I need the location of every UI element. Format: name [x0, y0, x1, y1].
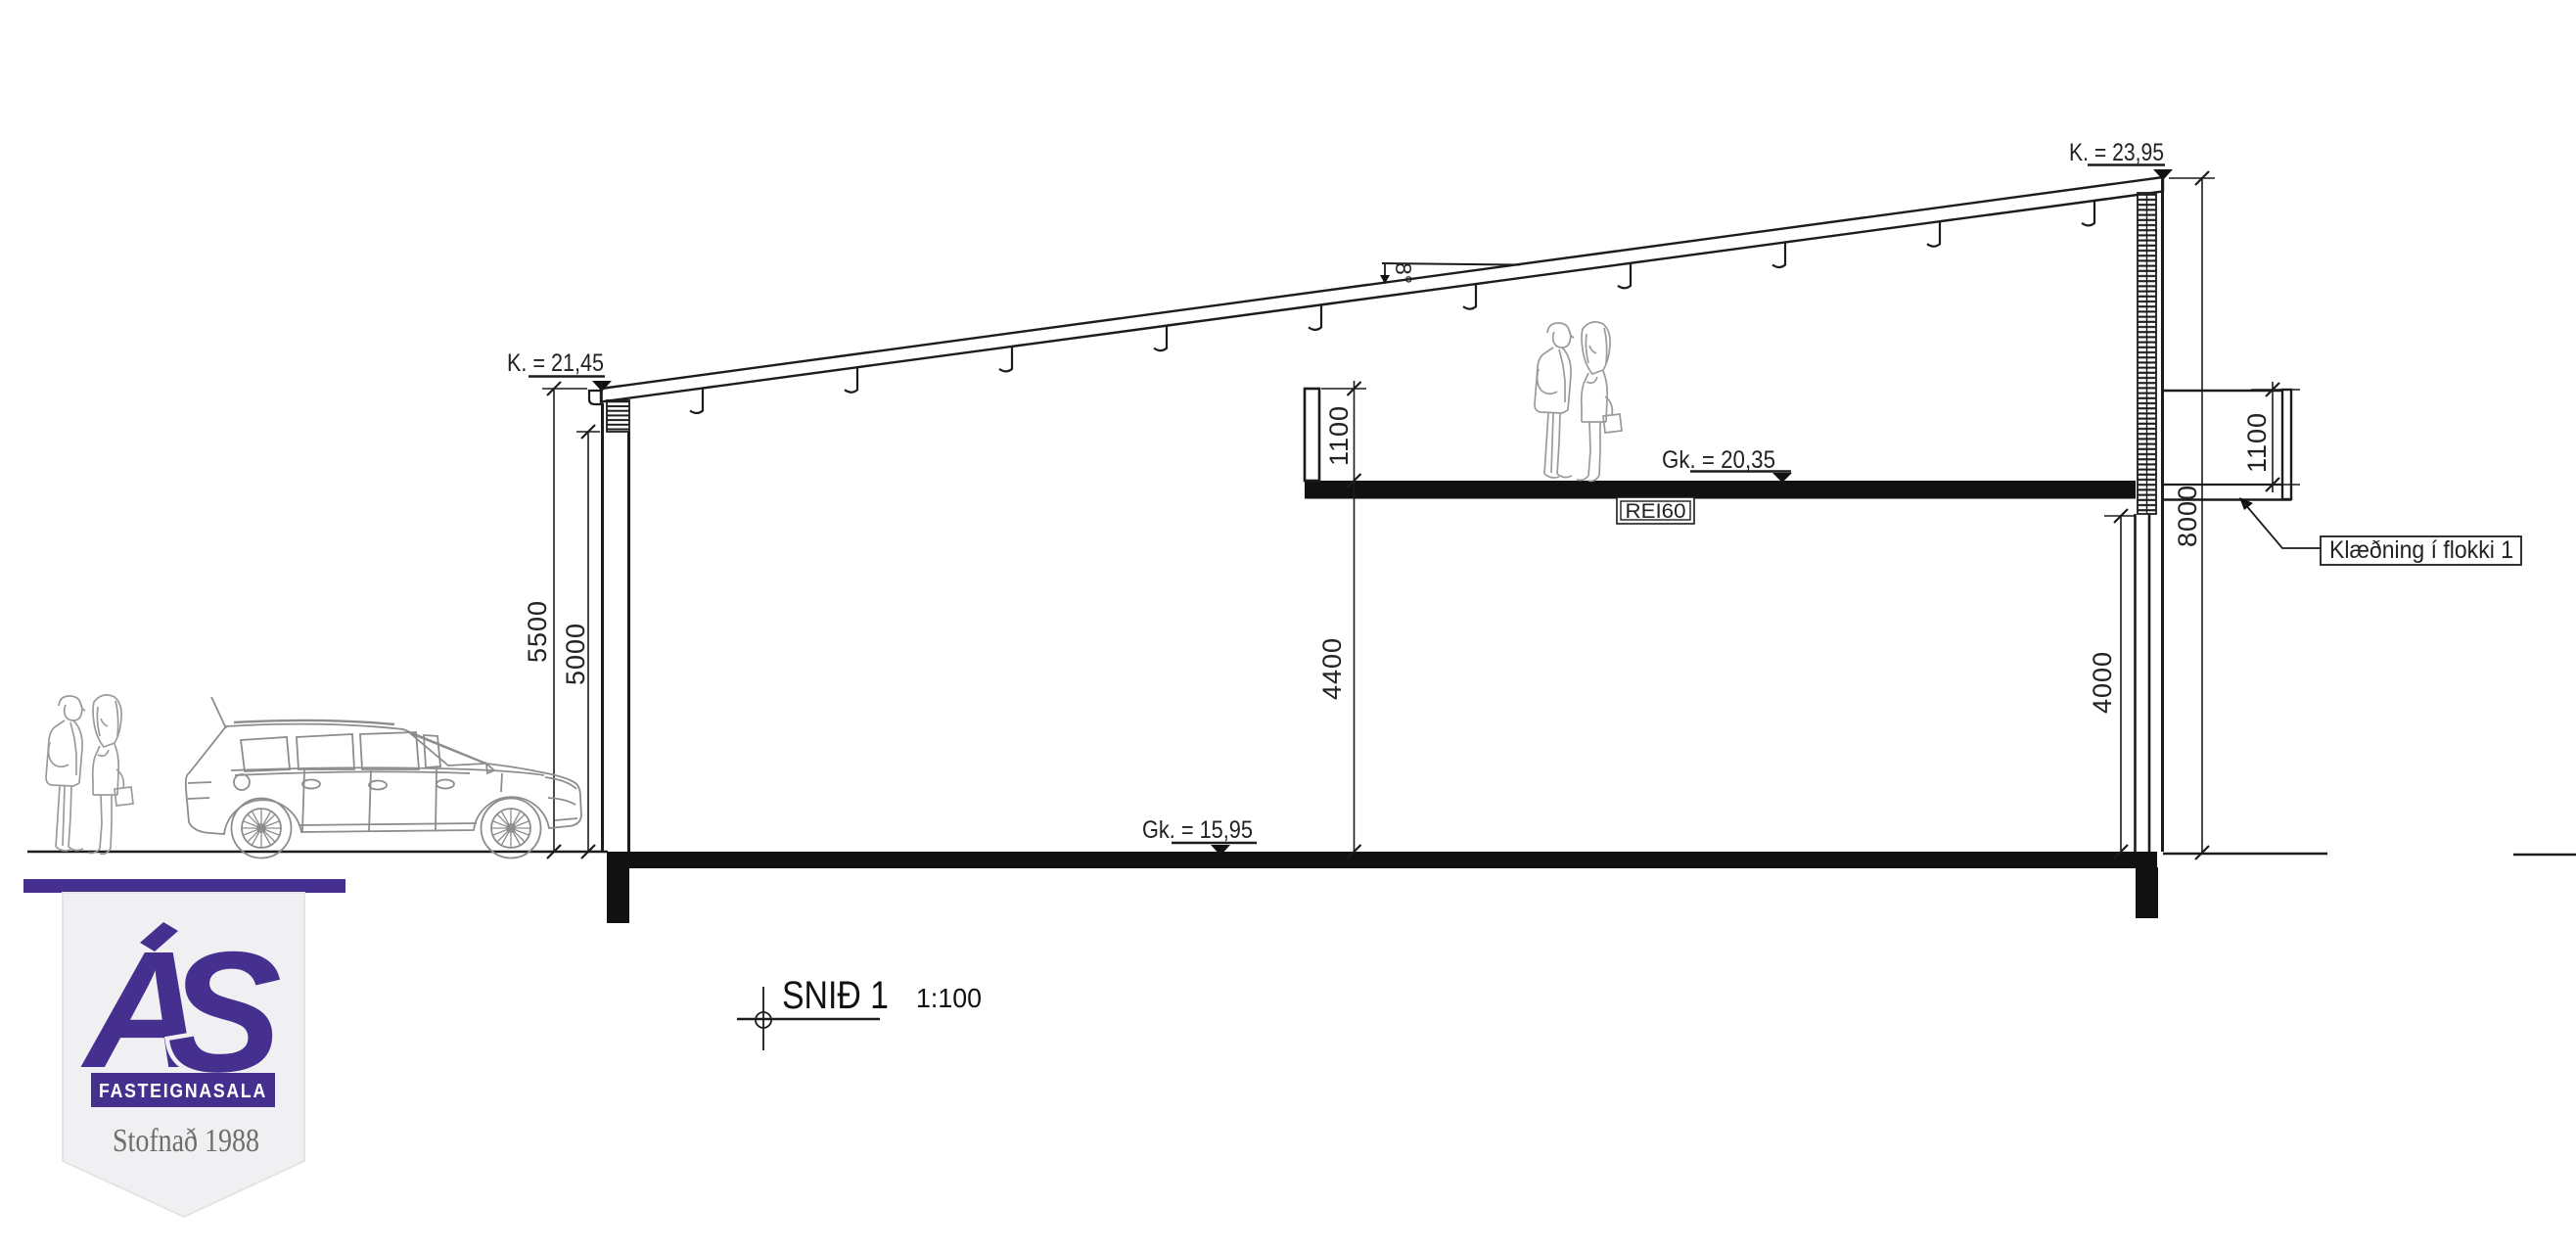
svg-text:5000: 5000 — [561, 623, 590, 685]
svg-text:Klæðning í flokki 1: Klæðning í flokki 1 — [2329, 536, 2513, 564]
svg-text:1:100: 1:100 — [916, 983, 982, 1013]
svg-text:K. = 21,45: K. = 21,45 — [507, 349, 604, 377]
svg-text:K. = 23,95: K. = 23,95 — [2069, 139, 2164, 166]
svg-text:SNIÐ 1: SNIÐ 1 — [782, 974, 889, 1017]
svg-text:Gk. = 15,95: Gk. = 15,95 — [1142, 816, 1253, 844]
svg-text:Gk. = 20,35: Gk. = 20,35 — [1662, 446, 1775, 474]
svg-text:8000: 8000 — [2173, 485, 2202, 547]
svg-text:5500: 5500 — [523, 600, 552, 663]
svg-text:REI60: REI60 — [1626, 499, 1686, 523]
svg-text:1100: 1100 — [1324, 405, 1354, 466]
svg-text:8°: 8° — [1391, 262, 1416, 284]
svg-text:Stofnað 1988: Stofnað 1988 — [113, 1123, 259, 1159]
svg-text:4000: 4000 — [2088, 651, 2117, 714]
svg-text:1100: 1100 — [2242, 412, 2272, 473]
svg-text:4400: 4400 — [1317, 637, 1347, 700]
svg-text:FASTEIGNASALA: FASTEIGNASALA — [99, 1081, 267, 1102]
